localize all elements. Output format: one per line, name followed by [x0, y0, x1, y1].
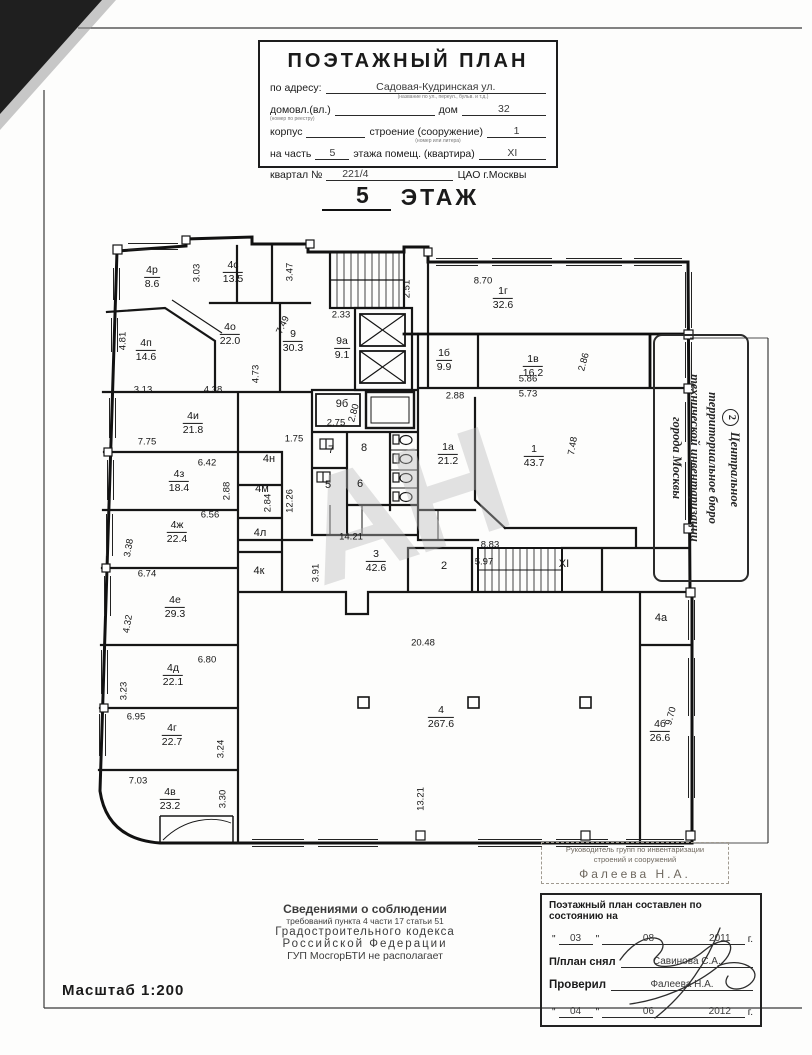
- date1-year: 2011: [695, 933, 745, 945]
- legal-note-line4: Российской Федерации: [250, 938, 480, 950]
- checker-name: Фалеева Н.А.: [611, 979, 753, 991]
- floor-part-row: на часть 5 этажа помещ. (квартира) XI: [270, 147, 546, 160]
- part-value: 5: [315, 147, 349, 160]
- surveyor-label: П/план снял: [549, 956, 616, 968]
- date2-day: 04: [559, 1006, 593, 1018]
- blank-underline: [384, 180, 452, 181]
- elevator-shafts: [355, 308, 412, 390]
- legal-note-line5: ГУП МосгорБТИ не располагает: [250, 950, 480, 962]
- address-value: Садовая-Кудринская ул.: [326, 81, 546, 94]
- floor-title: 5 ЭТАЖ: [322, 182, 479, 211]
- district-value: ЦАО г.Москвы: [458, 169, 527, 181]
- stroenie-note: (номер или литера): [270, 139, 546, 143]
- corner-scan-triangle: [0, 0, 102, 114]
- legal-note-line3: Градостроительного кодекса: [250, 926, 480, 938]
- kvartal-label: квартал №: [270, 169, 322, 181]
- stamp-number-badge: 2: [722, 409, 739, 426]
- wc-fixtures: [316, 392, 438, 540]
- date1-suffix: г.: [748, 934, 753, 945]
- columns: [100, 236, 695, 840]
- legal-note-line2: требований пункта 4 части 17 статьи 51: [250, 916, 480, 926]
- ownership-label: домовл.(вл.): [270, 104, 331, 116]
- ownership-note: (номер по реестру): [270, 117, 546, 121]
- bti-stamp-line4: города Москвы: [668, 338, 686, 578]
- date-row-1: " 03 " 08 2011 г.: [549, 933, 753, 945]
- date2-month: 06: [602, 1006, 695, 1018]
- signature-block: Поэтажный план составлен по состоянию на…: [540, 893, 762, 1027]
- bti-stamp-line2: территориальное бюро: [704, 338, 722, 578]
- date2-year: 2012: [695, 1006, 745, 1018]
- stroenie-label: строение (сооружение): [369, 126, 483, 138]
- inventory-head-stamp-line2: строений и сооружений: [545, 855, 725, 865]
- date2-suffix: г.: [748, 1007, 753, 1018]
- bti-stamp: 2Центральное территориальное бюро технич…: [653, 334, 749, 582]
- house-label: дом: [439, 104, 458, 116]
- date-row-2: " 04 " 06 2012 г.: [549, 1006, 753, 1018]
- part-label: на часть: [270, 148, 311, 160]
- date1-month: 08: [602, 933, 695, 945]
- stairs-top: [330, 252, 404, 308]
- title-block: ПОЭТАЖНЫЙ ПЛАН по адресу: Садовая-Кудрин…: [258, 40, 558, 168]
- bearing-walls: [404, 334, 688, 386]
- address-row: по адресу: Садовая-Кудринская ул.: [270, 81, 546, 94]
- inner-walls: [99, 246, 692, 843]
- house-value: 32: [462, 103, 546, 116]
- bti-stamp-line1: 2Центральное: [722, 338, 744, 578]
- bti-stamp-line3: технической инвентаризации: [686, 338, 704, 578]
- inventory-head-stamp: Руководитель групп по инвентаризации стр…: [541, 842, 729, 884]
- address-note: (название по ул., переул., бульв. и т.д.…: [270, 95, 546, 99]
- date1-day: 03: [559, 933, 593, 945]
- blank-underline: [306, 137, 365, 138]
- apartment-value: XI: [479, 147, 546, 160]
- checker-label: Проверил: [549, 979, 606, 991]
- outer-walls: [100, 237, 692, 843]
- stairs-xi: [478, 548, 562, 592]
- building-row: корпус строение (сооружение) 1: [270, 125, 546, 138]
- inventory-head-stamp-line1: Руководитель групп по инвентаризации: [545, 845, 725, 855]
- legal-note: Сведениями о соблюдении требований пункт…: [250, 902, 480, 962]
- stroenie-value: 1: [487, 125, 546, 138]
- checker-row: Проверил Фалеева Н.А.: [549, 979, 753, 991]
- kvartal-value: 221/4: [326, 168, 384, 181]
- signature-block-title: Поэтажный план составлен по состоянию на: [549, 900, 753, 922]
- inventory-head-stamp-name: Фалеева Н.А.: [545, 867, 725, 881]
- house-row: домовл.(вл.) дом 32: [270, 103, 546, 116]
- kvartal-row: квартал № 221/4 ЦАО г.Москвы: [270, 168, 546, 181]
- surveyor-row: П/план снял Савинова С.А.: [549, 956, 753, 968]
- address-label: по адресу:: [270, 82, 322, 94]
- korpus-label: корпус: [270, 126, 302, 138]
- apartment-label: этажа помещ. (квартира): [353, 148, 474, 160]
- blank-underline: [335, 115, 435, 116]
- scanned-floor-plan-page: АН ПОЭТАЖНЫЙ ПЛАН по адресу: Садовая-Куд…: [0, 0, 812, 1055]
- floor-number: 5: [322, 182, 391, 211]
- scale-label: Масштаб 1:200: [62, 982, 184, 999]
- floor-word: ЭТАЖ: [401, 184, 479, 211]
- document-title: ПОЭТАЖНЫЙ ПЛАН: [270, 50, 546, 73]
- legal-note-line1: Сведениями о соблюдении: [250, 902, 480, 916]
- surveyor-name: Савинова С.А.: [621, 956, 753, 968]
